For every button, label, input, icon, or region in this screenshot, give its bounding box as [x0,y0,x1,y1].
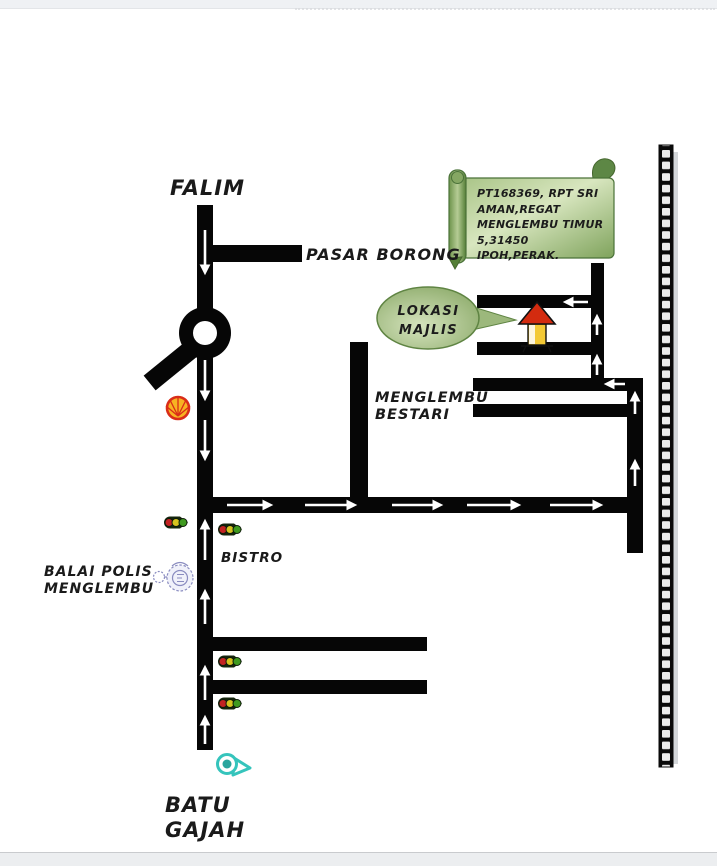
house-body-highlight [529,325,535,344]
label-menglembu-bestari-line2: BESTARI [375,407,489,424]
road-bottom-a [197,637,427,651]
label-balai-polis: BALAI POLIS MENGLEMBU [44,564,154,597]
address-line: MENGLEMBU TIMUR [477,217,613,233]
road-menglembu-bestari [350,342,368,497]
scroll-top-curl [593,159,615,181]
label-bistro: BISTRO [221,550,283,566]
window-bottom-bar [0,852,717,866]
roads [157,205,643,750]
police-badge-icon [154,563,194,592]
film-strip [659,145,678,767]
label-balai-polis-line2: MENGLEMBU [44,581,154,598]
label-falim: FALIM [170,176,245,200]
shell-station-icon [166,397,190,419]
roundabout [179,307,231,359]
address-line: 5,31450 IPOH,PERAK. [477,233,613,264]
address-line: AMAN,REGAT [477,202,613,218]
label-balai-polis-line1: BALAI POLIS [44,564,154,581]
location-bubble-text: LOKASI MAJLIS [386,303,471,340]
map-svg [0,0,717,866]
road-bottom-b [197,680,427,694]
traffic-light-icon [218,698,242,710]
address-line: PT168369, RPT SRI [477,186,613,202]
scroll-roll-end [452,172,464,184]
label-batu-gajah: BATU GAJAH [165,793,245,843]
whistle-icon [218,755,251,776]
map-canvas: FALIM PASAR BORONG MENGLEMBU BESTARI BIS… [0,0,717,866]
address-scroll-text: PT168369, RPT SRI AMAN,REGAT MENGLEMBU T… [477,186,613,264]
location-bubble-line1: LOKASI [386,303,471,322]
film-strip-shadow [674,152,679,764]
label-batu-gajah-line1: BATU [165,793,245,818]
label-pasar-borong: PASAR BORONG [306,245,461,264]
traffic-light-icon [164,517,188,529]
traffic-light-icon [218,656,242,668]
label-menglembu-bestari: MENGLEMBU BESTARI [375,390,489,424]
label-menglembu-bestari-line1: MENGLEMBU [375,390,489,407]
road-east-4 [473,404,630,417]
label-batu-gajah-line2: GAJAH [165,818,245,843]
film-strip-band [659,145,673,767]
traffic-light-icon [218,524,242,536]
location-bubble-line2: MAJLIS [386,322,471,341]
road-pasar-borong [205,245,302,262]
